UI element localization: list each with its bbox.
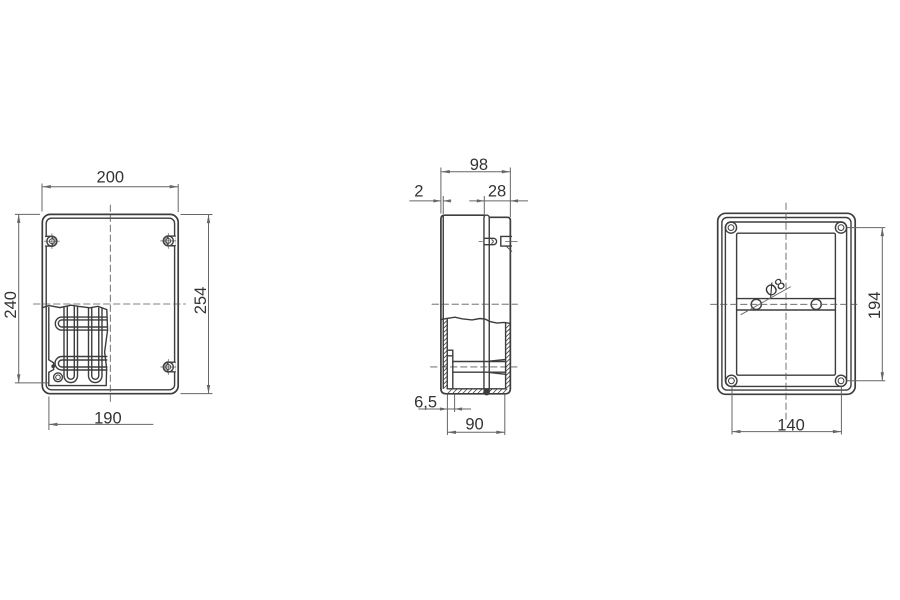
svg-text:90: 90: [465, 416, 483, 434]
svg-text:6,5: 6,5: [414, 393, 437, 411]
svg-text:200: 200: [97, 169, 125, 187]
svg-text:140: 140: [777, 416, 805, 434]
svg-text:98: 98: [470, 156, 488, 174]
svg-text:2: 2: [414, 182, 423, 200]
svg-text:194: 194: [866, 292, 884, 320]
svg-text:28: 28: [488, 182, 506, 200]
svg-text:240: 240: [2, 291, 20, 319]
svg-text:254: 254: [192, 287, 210, 315]
svg-text:190: 190: [94, 410, 122, 428]
